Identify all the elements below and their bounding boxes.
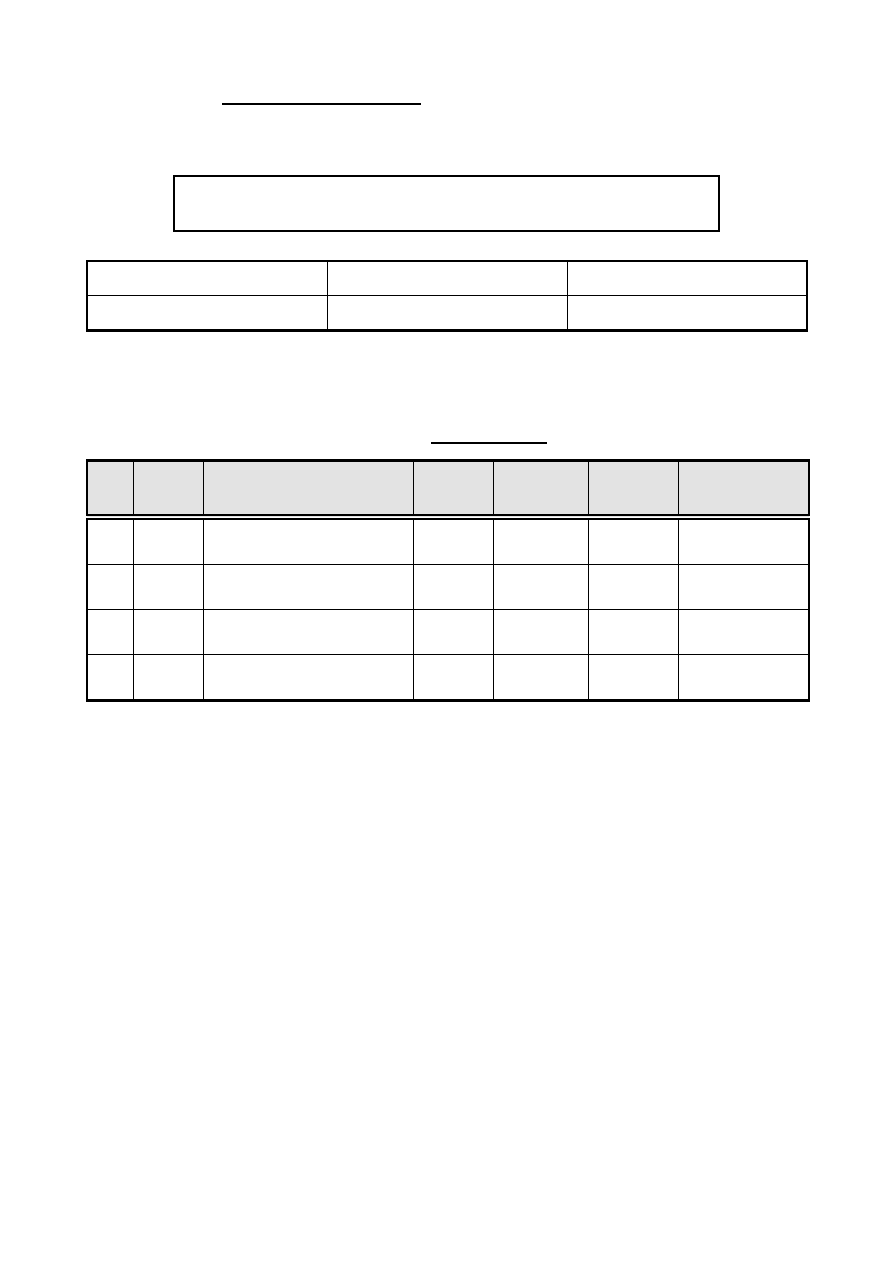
main-table-cell[interactable] — [87, 610, 133, 655]
main-table-cell[interactable] — [493, 565, 588, 610]
main-table-cell[interactable] — [493, 610, 588, 655]
info-table-row — [87, 296, 807, 331]
main-table-cell[interactable] — [133, 565, 203, 610]
info-table — [86, 260, 808, 332]
info-table-cell[interactable] — [567, 296, 807, 331]
main-table-cell[interactable] — [87, 565, 133, 610]
main-table-cell[interactable] — [588, 610, 678, 655]
main-table-cell[interactable] — [678, 610, 809, 655]
main-table-cell[interactable] — [678, 517, 809, 565]
main-table-cell[interactable] — [588, 517, 678, 565]
main-table-header-cell — [413, 461, 493, 518]
main-table-cell[interactable] — [493, 517, 588, 565]
main-table-cell[interactable] — [203, 517, 413, 565]
main-table-header-cell — [133, 461, 203, 518]
info-table-cell[interactable] — [87, 296, 327, 331]
document-title — [222, 89, 421, 105]
main-table-header-cell — [87, 461, 133, 518]
main-table-cell[interactable] — [678, 565, 809, 610]
main-table-cell[interactable] — [678, 655, 809, 701]
info-table-cell[interactable] — [327, 261, 567, 296]
main-table-row — [87, 655, 809, 701]
main-table-cell[interactable] — [588, 655, 678, 701]
main-table-cell[interactable] — [133, 655, 203, 701]
main-table-cell[interactable] — [413, 565, 493, 610]
document-page — [0, 0, 893, 1262]
main-table-cell[interactable] — [133, 517, 203, 565]
main-table-cell[interactable] — [203, 610, 413, 655]
main-table — [86, 459, 810, 702]
main-table-cell[interactable] — [203, 565, 413, 610]
main-table-cell[interactable] — [413, 610, 493, 655]
notice-box[interactable] — [173, 175, 720, 232]
info-table-row — [87, 261, 807, 296]
main-table-header-cell — [678, 461, 809, 518]
main-table-cell[interactable] — [87, 655, 133, 701]
main-table-row — [87, 565, 809, 610]
main-table-row — [87, 517, 809, 565]
main-table-cell[interactable] — [87, 517, 133, 565]
main-table-cell[interactable] — [413, 655, 493, 701]
main-table-header-cell — [203, 461, 413, 518]
info-table-cell[interactable] — [87, 261, 327, 296]
main-table-row — [87, 610, 809, 655]
main-table-cell[interactable] — [133, 610, 203, 655]
main-table-header-row — [87, 461, 809, 518]
info-table-cell[interactable] — [327, 296, 567, 331]
main-table-cell[interactable] — [203, 655, 413, 701]
info-table-cell[interactable] — [567, 261, 807, 296]
main-table-header-cell — [493, 461, 588, 518]
main-table-header-cell — [588, 461, 678, 518]
section-heading — [431, 428, 547, 444]
main-table-cell[interactable] — [588, 565, 678, 610]
main-table-cell[interactable] — [413, 517, 493, 565]
main-table-cell[interactable] — [493, 655, 588, 701]
